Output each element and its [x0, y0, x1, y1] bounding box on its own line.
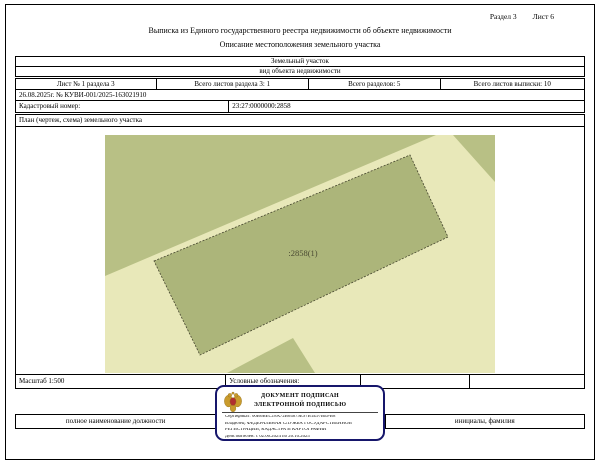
sheet-info-cell-3: Всего разделов: 5 [308, 79, 440, 89]
object-type-cell: Земельный участок [16, 57, 584, 66]
signature-position-cell: полное наименование должности [16, 415, 215, 428]
sheet-info-cell-2: Всего листов раздела 3: 1 [156, 79, 308, 89]
stamp-divider [222, 412, 378, 413]
page-header: Раздел 3 Лист 6 [490, 12, 554, 21]
document-subtitle: Описание местоположения земельного участ… [0, 40, 600, 49]
digital-signature-stamp: ДОКУМЕНТ ПОДПИСАН ЭЛЕКТРОННОЙ ПОДПИСЬЮ С… [215, 385, 385, 441]
signature-name-cell: инициалы, фамилия [385, 415, 584, 428]
object-type-caption-cell: вид объекта недвижимости [16, 67, 584, 76]
statement-number-cell: 26.08.2025г. № КУВИ-001/2025-163021910 [16, 90, 584, 100]
cadastral-number-value-cell: 23:27:0000000:2858 [228, 101, 584, 112]
legend-empty-cell-2 [469, 375, 584, 388]
stamp-certificate: Сертификат: 00В6ВЕС18А72В64879Е97В1Е97ВЕ… [225, 415, 379, 420]
plan-map-svg: :2858(1) [105, 135, 495, 373]
stamp-validity: Действителен: с 02.06.2024 по 26.10.2025 [225, 435, 379, 440]
sheet-info-cell-1: Лист № 1 раздела 3 [16, 79, 156, 89]
sheet-info-cell-4: Всего листов выписки: 10 [440, 79, 584, 89]
stamp-title-line1: ДОКУМЕНТ ПОДПИСАН [217, 393, 383, 399]
stamp-title-line2: ЭЛЕКТРОННОЙ ПОДПИСЬЮ [217, 402, 383, 408]
stamp-owner-line1: Владелец: ФЕДЕРАЛЬНАЯ СЛУЖБА ГОСУДАРСТВЕ… [225, 422, 379, 427]
plan-header-cell: План (чертеж, схема) земельного участка [16, 115, 584, 126]
object-type-caption-row: вид объекта недвижимости [15, 66, 585, 77]
scale-cell: Масштаб 1:500 [16, 375, 225, 388]
cadastral-number-row: Кадастровый номер: 23:27:0000000:2858 [15, 100, 585, 113]
document-title: Выписка из Единого государственного реес… [0, 26, 600, 35]
section-label: Раздел 3 [490, 12, 517, 21]
cadastral-number-label-cell: Кадастровый номер: [16, 101, 228, 112]
plan-map: :2858(1) [105, 135, 495, 373]
stamp-owner-line2: РЕГИСТРАЦИИ, КАДАСТРА И КАРТОГРАФИИ [225, 428, 379, 433]
sheet-label: Лист 6 [533, 12, 554, 21]
parcel-label: :2858(1) [288, 248, 317, 258]
